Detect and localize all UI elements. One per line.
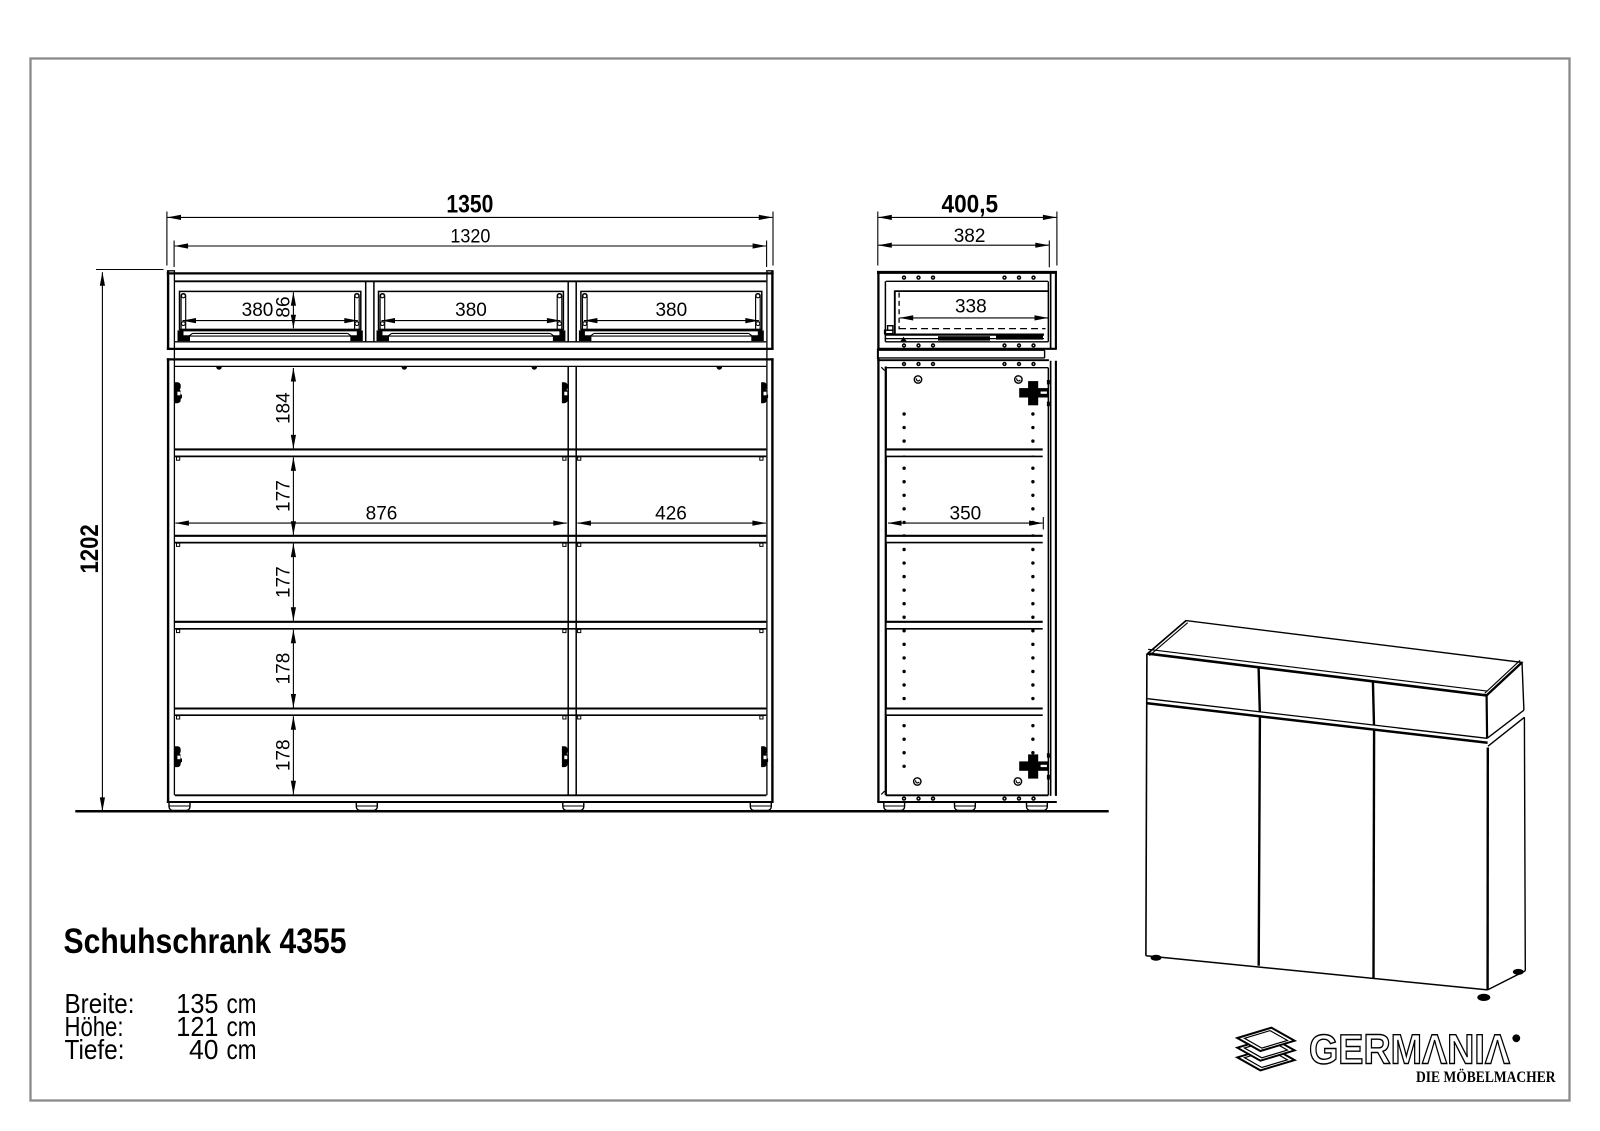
svg-text:177: 177 bbox=[274, 566, 295, 598]
svg-text:1320: 1320 bbox=[450, 227, 490, 248]
svg-text:DIE MÖBELMACHER: DIE MÖBELMACHER bbox=[1416, 1069, 1556, 1086]
svg-text:184: 184 bbox=[274, 392, 295, 424]
svg-text:178: 178 bbox=[274, 653, 295, 685]
svg-text:876: 876 bbox=[366, 503, 398, 524]
svg-text:380: 380 bbox=[242, 300, 274, 321]
svg-text:Tiefe:: Tiefe: bbox=[65, 1034, 125, 1065]
svg-text:86: 86 bbox=[274, 296, 295, 317]
svg-text:cm: cm bbox=[227, 1034, 257, 1065]
svg-text:178: 178 bbox=[274, 739, 295, 771]
svg-text:338: 338 bbox=[955, 296, 987, 317]
svg-text:380: 380 bbox=[455, 300, 487, 321]
svg-text:426: 426 bbox=[655, 503, 687, 524]
svg-text:382: 382 bbox=[954, 226, 986, 247]
svg-text:1350: 1350 bbox=[446, 191, 493, 219]
svg-text:Schuhschrank 4355: Schuhschrank 4355 bbox=[64, 922, 347, 961]
svg-text:177: 177 bbox=[274, 480, 295, 512]
svg-text:400,5: 400,5 bbox=[942, 191, 999, 219]
svg-text:380: 380 bbox=[655, 300, 687, 321]
svg-text:GERMΛNIΛ: GERMΛNIΛ bbox=[1309, 1026, 1510, 1073]
svg-text:1202: 1202 bbox=[76, 524, 104, 573]
svg-text:40: 40 bbox=[189, 1034, 219, 1065]
svg-text:350: 350 bbox=[950, 503, 982, 524]
